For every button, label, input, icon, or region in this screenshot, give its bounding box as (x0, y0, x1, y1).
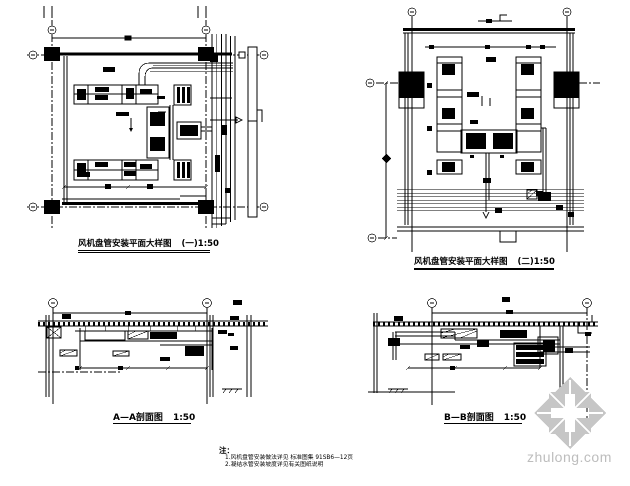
section-b-title: B—B剖面图1:50 (444, 410, 522, 424)
pinwheel-logo-icon (534, 377, 606, 449)
plan-1-fan-coil-layout (27, 6, 268, 228)
section-a-title-text: A—A剖面图 (113, 413, 163, 423)
plan-1-scale: (一)1:50 (182, 239, 219, 249)
note-line: 2.凝结水管安装坡度详见有关图纸说明 (225, 462, 353, 469)
section-a-scale: 1:50 (173, 413, 195, 423)
general-notes: 注： 1.风机盘管安装做法详见 标准图集 91SB6—12页 2.凝结水管安装坡… (219, 446, 353, 469)
plan-2-scale: (二)1:50 (518, 257, 555, 267)
section-a-a (38, 299, 268, 405)
notes-heading: 注： (219, 446, 353, 455)
watermark-text: zhulong.com (527, 449, 612, 465)
section-b-b (368, 297, 598, 428)
section-b-scale: 1:50 (504, 413, 526, 423)
plan-1-title: 风机盘管安装平面大样图(一)1:50 (78, 237, 210, 253)
plan-2-fan-coil-layout (366, 8, 600, 252)
drawing-sheet: 风机盘管安装平面大样图(一)1:50 风机盘管安装平面大样图(二)1:50 A—… (0, 0, 630, 486)
section-a-title: A—A剖面图1:50 (113, 410, 191, 424)
plan-2-title: 风机盘管安装平面大样图(二)1:50 (414, 255, 554, 270)
note-line: 1.风机盘管安装做法详见 标准图集 91SB6—12页 (225, 455, 353, 462)
plan-1-title-text: 风机盘管安装平面大样图 (78, 239, 172, 249)
plan-2-title-text: 风机盘管安装平面大样图 (414, 257, 508, 267)
section-b-title-text: B—B剖面图 (444, 413, 494, 423)
axis-bubble-icon (49, 299, 212, 308)
